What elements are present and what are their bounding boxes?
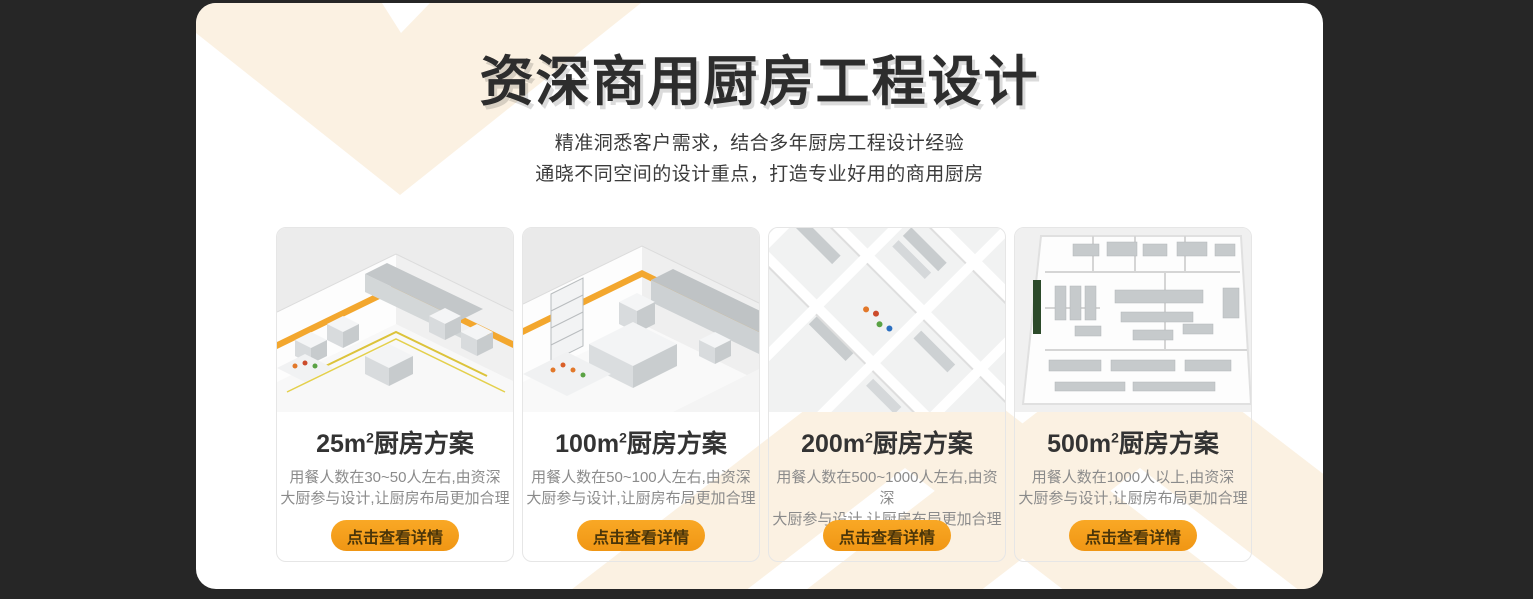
plan-card-200m2: 200m2厨房方案 用餐人数在500~1000人左右,由资深 大厨参与设计,让厨… <box>768 227 1006 562</box>
kitchen-render-200m2-image <box>769 228 1005 412</box>
plan-card-500m2: 500m2厨房方案 用餐人数在1000人以上,由资深 大厨参与设计,让厨房布局更… <box>1014 227 1252 562</box>
plan-title: 500m2厨房方案 <box>1015 424 1251 460</box>
plan-card-100m2: 100m2厨房方案 用餐人数在50~100人左右,由资深 大厨参与设计,让厨房布… <box>522 227 760 562</box>
plan-cards: 25m2厨房方案 用餐人数在30~50人左右,由资深 大厨参与设计,让厨房布局更… <box>276 227 1252 562</box>
plan-title: 25m2厨房方案 <box>277 424 513 460</box>
view-details-button[interactable]: 点击查看详情 <box>823 520 951 551</box>
view-details-button[interactable]: 点击查看详情 <box>577 520 705 551</box>
plan-description: 用餐人数在30~50人左右,由资深 大厨参与设计,让厨房布局更加合理 <box>277 467 513 509</box>
section-subtitle-line-1: 精准洞悉客户需求，结合多年厨房工程设计经验 <box>196 128 1323 159</box>
kitchen-render-25m2-image <box>277 228 513 412</box>
content-panel: 资深商用厨房工程设计 精准洞悉客户需求，结合多年厨房工程设计经验 通晓不同空间的… <box>196 3 1323 589</box>
section-title: 资深商用厨房工程设计 <box>196 51 1323 113</box>
kitchen-render-500m2-image <box>1015 228 1251 412</box>
plan-card-25m2: 25m2厨房方案 用餐人数在30~50人左右,由资深 大厨参与设计,让厨房布局更… <box>276 227 514 562</box>
kitchen-render-100m2-image <box>523 228 759 412</box>
plan-title: 200m2厨房方案 <box>769 424 1005 460</box>
plan-description: 用餐人数在1000人以上,由资深 大厨参与设计,让厨房布局更加合理 <box>1015 467 1251 509</box>
section-subtitle-line-2: 通晓不同空间的设计重点，打造专业好用的商用厨房 <box>196 159 1323 190</box>
page: { "theme": { "accent_orange": "#F6A01D",… <box>0 0 1533 599</box>
view-details-button[interactable]: 点击查看详情 <box>331 520 459 551</box>
plan-description: 用餐人数在50~100人左右,由资深 大厨参与设计,让厨房布局更加合理 <box>523 467 759 509</box>
plan-title: 100m2厨房方案 <box>523 424 759 460</box>
view-details-button[interactable]: 点击查看详情 <box>1069 520 1197 551</box>
section-subtitle: 精准洞悉客户需求，结合多年厨房工程设计经验 通晓不同空间的设计重点，打造专业好用… <box>196 128 1323 190</box>
section-header: 资深商用厨房工程设计 精准洞悉客户需求，结合多年厨房工程设计经验 通晓不同空间的… <box>196 3 1323 190</box>
